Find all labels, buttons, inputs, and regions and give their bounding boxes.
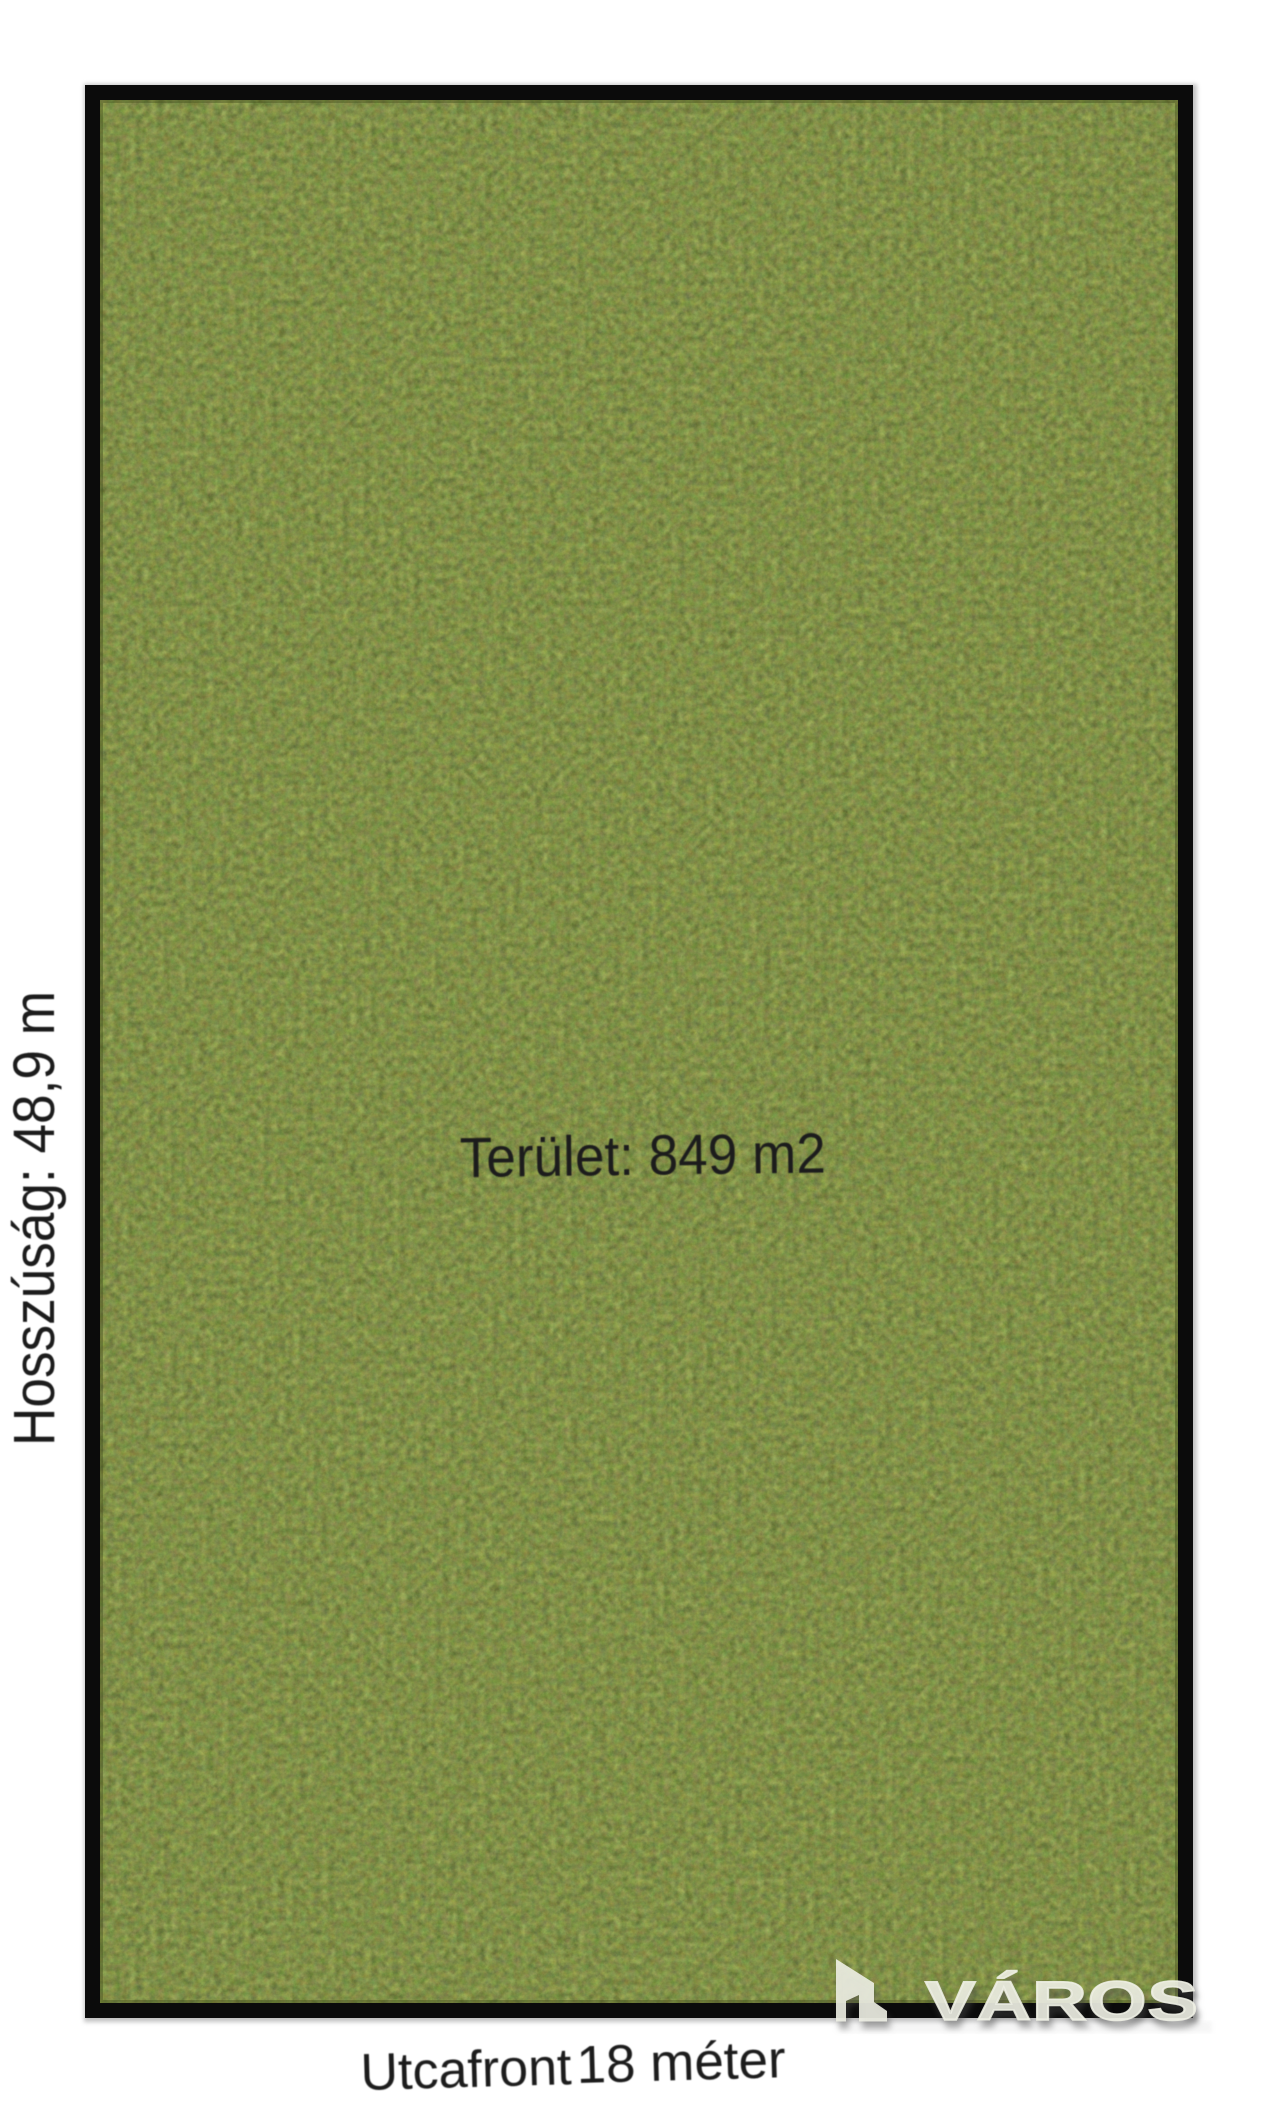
- svg-text:VÁROS: VÁROS: [925, 1970, 1199, 2033]
- svg-text:Terület: 849 m2: Terület: 849 m2: [459, 1122, 826, 1190]
- svg-text:18 méter: 18 méter: [576, 2030, 787, 2095]
- svg-text:Utcafront: Utcafront: [360, 2038, 573, 2102]
- svg-text:Hosszúság: 48,9 m: Hosszúság: 48,9 m: [2, 991, 67, 1446]
